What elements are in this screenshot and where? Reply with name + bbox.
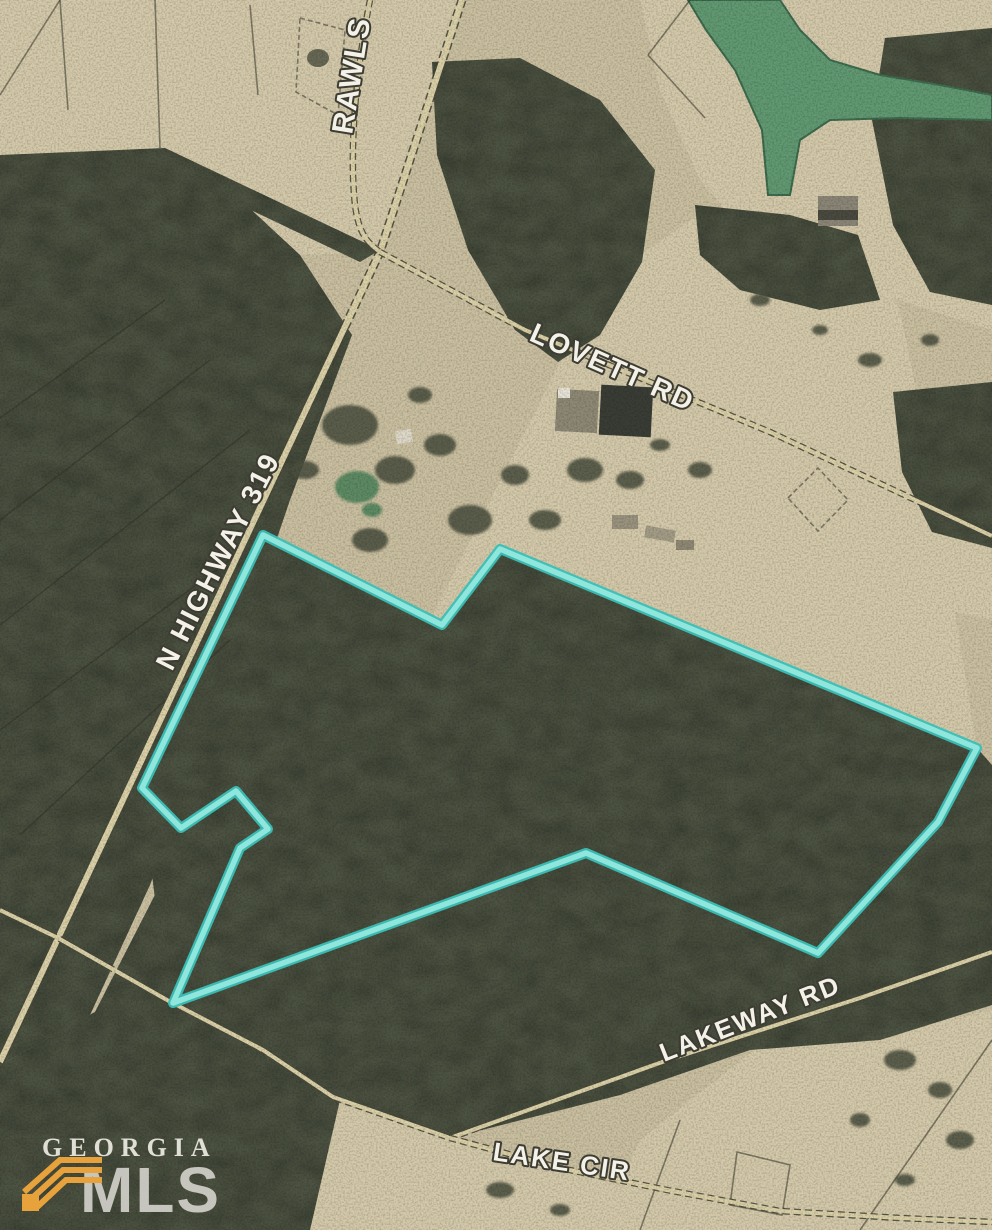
watermark-mls-text: MLS — [80, 1154, 221, 1226]
aerial-map-screenshot: RAWLS N HIGHWAY 319 LOVETT RD LAKEWAY RD… — [0, 0, 992, 1230]
photo-grain — [0, 0, 992, 1230]
aerial-map: RAWLS N HIGHWAY 319 LOVETT RD LAKEWAY RD… — [0, 0, 992, 1230]
